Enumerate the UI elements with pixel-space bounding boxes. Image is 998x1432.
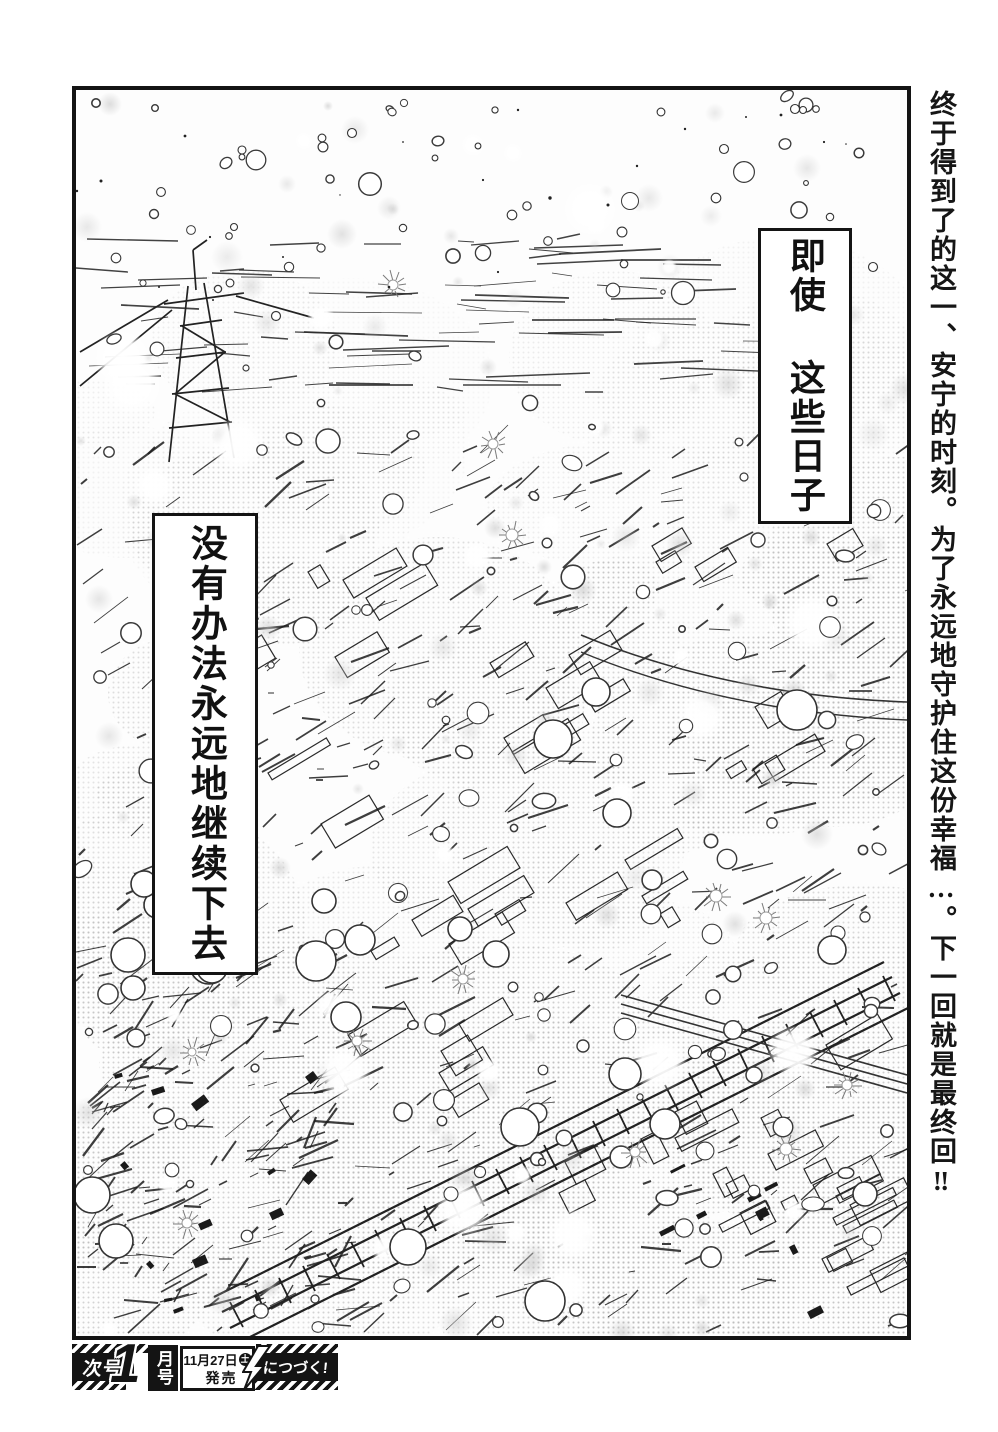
caption-box-right: 即使 这些日子 [758,228,852,524]
caption-box-left: 没有办法永远地继续下去 [152,513,258,975]
next-issue-footer: 次号 1 月号 11月27日 土 発売 につづく! [0,1343,998,1395]
month-box: 月号 [148,1345,178,1391]
release-label: 発売 [198,1368,238,1388]
issue-number: 1 [110,1336,141,1391]
caption-left-text: 没有办法永远地继续下去 [186,524,225,964]
main-panel: 即使 这些日子 没有办法永远地继续下去 [72,86,911,1340]
bolt-decoration-icon [242,1344,272,1392]
manga-page: 即使 这些日子 没有办法永远地继续下去 终于得到了的这一、安宁的时刻。为了永远地… [0,0,998,1432]
release-date: 11月27日 [183,1350,237,1369]
month-label: 月号 [148,1350,178,1386]
caption-right-text: 即使 这些日子 [786,237,824,515]
side-margin-note: 终于得到了的这一、安宁的时刻。为了永远地守护住这份幸福…。下一回就是最终回‼ [908,90,974,1360]
